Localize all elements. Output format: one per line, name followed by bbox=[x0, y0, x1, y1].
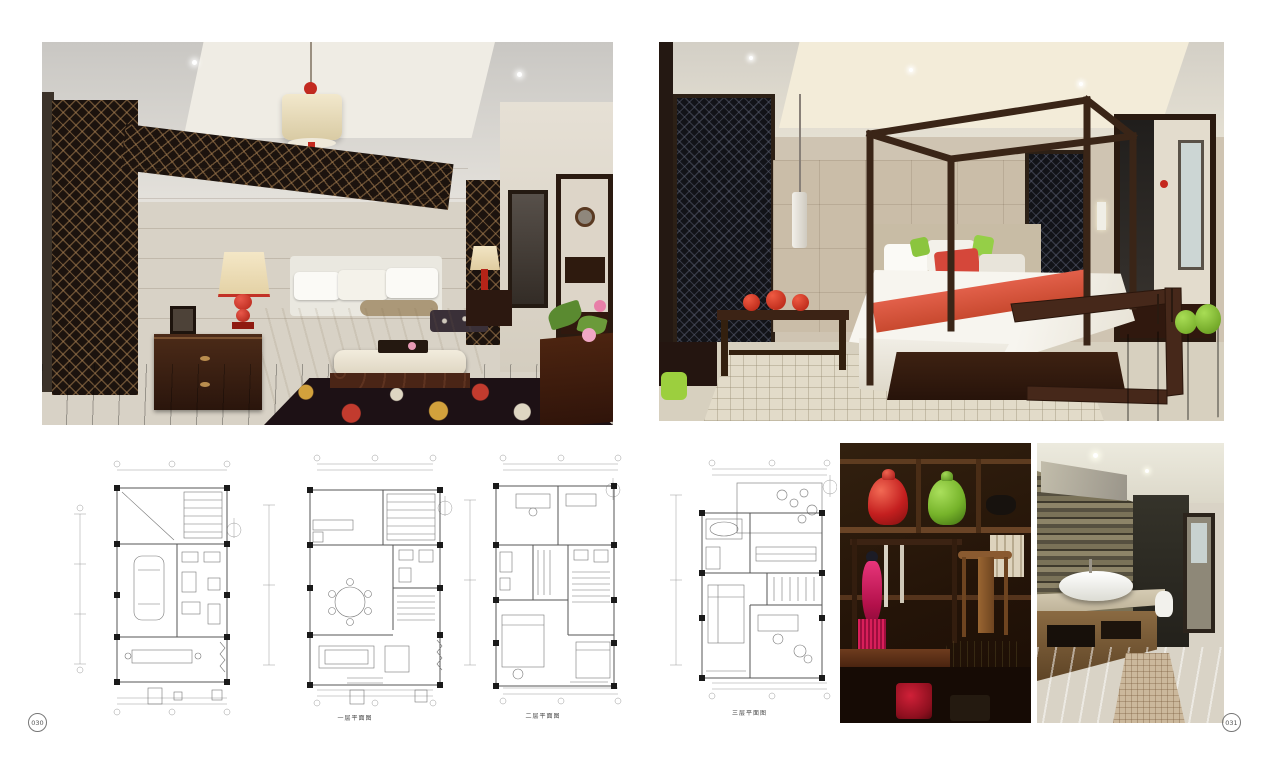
lotus-flower bbox=[594, 300, 606, 312]
shelf-board bbox=[840, 527, 1031, 533]
vessel-sink bbox=[1059, 571, 1133, 601]
stand-post bbox=[952, 539, 957, 643]
lamp-base-right bbox=[481, 269, 488, 291]
mirror-panel bbox=[508, 190, 548, 308]
nightstand-right bbox=[466, 290, 512, 326]
round-mirror bbox=[575, 207, 595, 227]
table-surface bbox=[840, 649, 950, 667]
lamp-foot bbox=[232, 322, 254, 329]
hanging-scroll bbox=[884, 545, 888, 607]
green-jar-lid bbox=[941, 471, 953, 481]
chair-back-splat bbox=[978, 557, 994, 633]
photo-bedroom-canopy bbox=[659, 42, 1224, 421]
bench-carved-base bbox=[330, 373, 470, 388]
lime-cushion bbox=[661, 372, 687, 400]
downlight bbox=[1093, 453, 1098, 458]
door-window bbox=[1191, 523, 1207, 563]
photo-bedroom-classic bbox=[42, 42, 613, 425]
drawer-handle bbox=[200, 356, 210, 361]
photo-bathroom bbox=[1037, 443, 1224, 723]
bench-tray bbox=[378, 340, 428, 353]
floor-plan-second-floor: 二层平面图 bbox=[458, 450, 628, 720]
red-gourd-vase bbox=[792, 294, 809, 311]
candlestick bbox=[1157, 294, 1159, 324]
dark-box bbox=[950, 695, 990, 721]
door-frame bbox=[1183, 513, 1215, 633]
green-vase bbox=[1175, 310, 1197, 334]
pillow bbox=[338, 270, 388, 300]
pillow bbox=[386, 268, 438, 298]
table-shadow-area bbox=[840, 667, 1031, 723]
downlight bbox=[1145, 469, 1149, 473]
page-number-left: 030 bbox=[28, 713, 47, 732]
shelf-board bbox=[840, 459, 1031, 464]
floor-plan-first-floor: 一层平面图 bbox=[255, 450, 455, 722]
lamp-base-ball bbox=[234, 294, 252, 310]
chair-stile bbox=[1004, 557, 1008, 635]
red-jar-lid bbox=[882, 469, 895, 480]
candlestick bbox=[1171, 288, 1173, 322]
shelf-divider bbox=[916, 459, 921, 533]
stand-post bbox=[852, 539, 857, 649]
table-leg bbox=[839, 320, 846, 370]
hall-console bbox=[565, 257, 605, 283]
black-teapot bbox=[986, 495, 1016, 515]
lamp-base-ball bbox=[236, 309, 250, 322]
green-temple-jar bbox=[928, 479, 966, 525]
plan-caption-second-floor: 二层平面图 bbox=[458, 711, 628, 720]
tassel-fringe bbox=[858, 619, 886, 649]
toilet bbox=[1155, 591, 1173, 617]
book-spread: 一层平面图 bbox=[0, 0, 1268, 768]
table-lamp-shade-right bbox=[470, 246, 500, 270]
faucet bbox=[1089, 559, 1092, 573]
floor-plan-third-floor: 三层平面图 bbox=[662, 455, 837, 717]
downlight bbox=[517, 72, 522, 77]
photo-frame bbox=[170, 306, 196, 334]
red-gourd-vase bbox=[766, 290, 786, 310]
table-leg bbox=[721, 320, 728, 376]
stand-rail bbox=[850, 539, 962, 545]
magenta-tassel bbox=[862, 561, 882, 625]
open-shelf bbox=[1047, 625, 1095, 647]
red-gourd-vase bbox=[743, 294, 760, 311]
shelf-divider bbox=[976, 459, 981, 533]
hanging-scroll bbox=[900, 545, 904, 603]
chair-stile bbox=[962, 557, 966, 637]
pillow bbox=[294, 272, 340, 300]
red-temple-jar bbox=[868, 477, 908, 525]
plan-caption-third-floor: 三层平面图 bbox=[662, 708, 837, 717]
lotus-flower bbox=[582, 328, 596, 342]
red-lacquer-box bbox=[896, 683, 932, 719]
photo-study-shelf bbox=[840, 443, 1031, 723]
pendant-drum-shade bbox=[282, 94, 342, 140]
floor-plan-basement bbox=[62, 452, 247, 727]
open-shelf bbox=[1101, 621, 1141, 639]
green-vase bbox=[1195, 304, 1221, 334]
page-number-right: 031 bbox=[1222, 713, 1241, 732]
table-lamp-shade-left bbox=[218, 252, 270, 297]
table-shelf bbox=[729, 350, 844, 355]
downlight bbox=[192, 60, 197, 65]
side-table-top bbox=[717, 310, 849, 320]
console-table bbox=[540, 333, 613, 425]
plan-caption-first-floor: 一层平面图 bbox=[255, 713, 455, 722]
tray-flower bbox=[408, 342, 416, 350]
sideboard bbox=[1127, 326, 1224, 421]
nightstand-top-edge bbox=[154, 337, 262, 339]
